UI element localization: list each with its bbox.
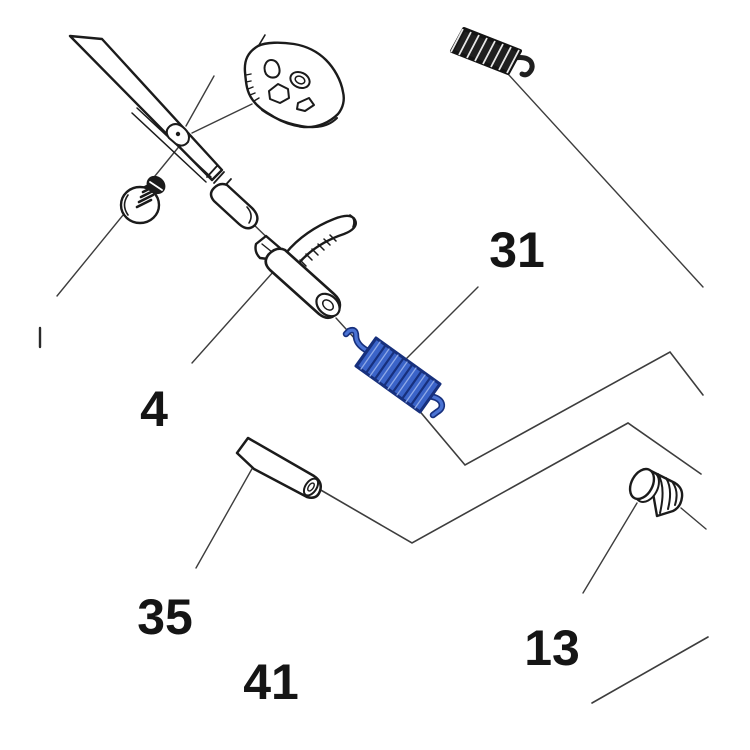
callout-31: 31	[489, 222, 545, 278]
leader-callout-4	[192, 262, 282, 363]
linkage-polyline-upper	[417, 352, 703, 465]
plate-hole-1	[265, 60, 280, 78]
callout-41: 41	[243, 654, 299, 710]
part-pin	[237, 438, 321, 498]
leader-screw	[57, 138, 186, 296]
part-lever	[256, 215, 356, 321]
rod-body	[70, 36, 222, 180]
leader-rod-hole-up	[186, 76, 214, 126]
callout-13: 13	[524, 620, 580, 676]
part-shaft-rod	[70, 36, 257, 228]
leader-callout-35	[196, 467, 253, 568]
part-screw-washer	[121, 173, 168, 223]
leader-rod-hole-to-plate	[192, 104, 252, 133]
lever-arm	[286, 216, 356, 264]
line-bottom-right	[592, 637, 708, 703]
part-blue-coil-spring	[346, 330, 442, 415]
leader-plug-right	[681, 508, 706, 529]
blue-spring-hook-top-fill	[346, 330, 366, 350]
callout-4: 4	[140, 381, 168, 437]
diagram-canvas: 31 4 35 41 13	[0, 0, 750, 750]
callout-labels: 31 4 35 41 13	[137, 222, 580, 710]
leader-callout-13	[583, 503, 637, 593]
callout-35: 35	[137, 589, 193, 645]
rod-boss-hole	[176, 132, 180, 136]
parts-diagram: 31 4 35 41 13	[0, 0, 750, 750]
part-cam-plate	[245, 35, 344, 127]
part-black-coil-spring	[451, 29, 532, 75]
